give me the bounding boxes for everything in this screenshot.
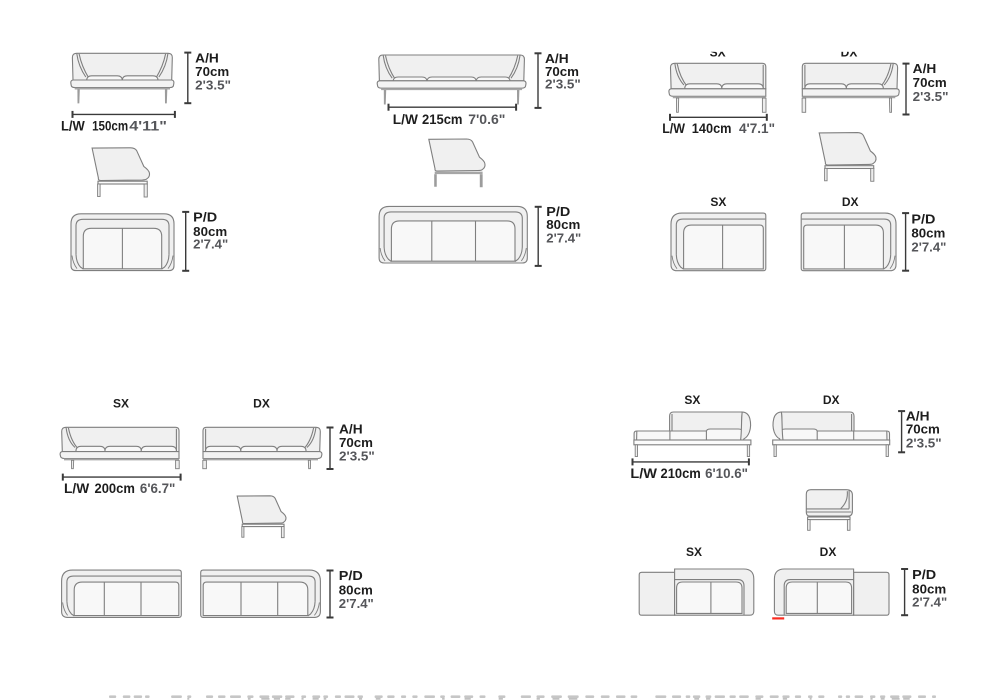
svg-text:DX: DX: [253, 397, 270, 411]
svg-text:A/H: A/H: [195, 52, 219, 66]
svg-text:P/D: P/D: [911, 212, 935, 226]
svg-text:80cm: 80cm: [339, 583, 373, 597]
svg-text:2'3.5": 2'3.5": [906, 437, 942, 451]
svg-text:2'3.5": 2'3.5": [913, 90, 949, 104]
svg-text:DX: DX: [823, 393, 840, 407]
svg-text:7'0.6": 7'0.6": [468, 111, 505, 127]
svg-text:A/H: A/H: [339, 423, 363, 437]
svg-text:4'11": 4'11": [129, 118, 167, 134]
svg-text:A/H: A/H: [913, 62, 937, 76]
svg-text:200cm: 200cm: [95, 480, 135, 496]
svg-text:6'6.7": 6'6.7": [140, 480, 176, 496]
svg-text:P/D: P/D: [339, 569, 363, 583]
svg-text:SX: SX: [684, 393, 700, 407]
svg-text:2'3.5": 2'3.5": [195, 78, 231, 92]
svg-text:140cm: 140cm: [692, 120, 732, 136]
svg-text:80cm: 80cm: [911, 227, 945, 241]
svg-text:80cm: 80cm: [546, 218, 580, 232]
svg-text:L/W: L/W: [662, 120, 685, 136]
svg-text:215cm: 215cm: [422, 111, 463, 127]
svg-text:L/W: L/W: [64, 480, 90, 496]
svg-text:P/D: P/D: [193, 210, 217, 224]
svg-text:2'7.4": 2'7.4": [912, 596, 947, 610]
svg-text:2'7.4": 2'7.4": [339, 597, 374, 611]
svg-text:L/W: L/W: [393, 111, 419, 127]
svg-text:70cm: 70cm: [906, 422, 940, 436]
svg-text:DX: DX: [842, 195, 859, 209]
svg-text:SX: SX: [113, 397, 129, 411]
svg-text:2'3.5": 2'3.5": [545, 78, 581, 92]
svg-text:2'7.4": 2'7.4": [193, 238, 228, 252]
svg-text:70cm: 70cm: [195, 65, 229, 79]
svg-text:70cm: 70cm: [913, 76, 947, 90]
svg-text:SX: SX: [710, 195, 726, 209]
svg-text:150cm: 150cm: [92, 118, 128, 134]
svg-text:DX: DX: [820, 545, 837, 559]
svg-text:P/D: P/D: [546, 205, 570, 219]
svg-text:70cm: 70cm: [339, 436, 373, 450]
svg-text:SX: SX: [686, 545, 702, 559]
svg-text:2'7.4": 2'7.4": [911, 241, 946, 255]
svg-text:L/W: L/W: [630, 465, 657, 481]
svg-text:6'10.6": 6'10.6": [705, 465, 748, 481]
svg-text:80cm: 80cm: [912, 583, 946, 597]
svg-text:2'7.4": 2'7.4": [546, 232, 581, 246]
svg-text:P/D: P/D: [912, 568, 936, 582]
svg-text:2'3.5": 2'3.5": [339, 450, 375, 464]
svg-text:210cm: 210cm: [661, 465, 701, 481]
svg-text:4'7.1": 4'7.1": [739, 120, 775, 136]
svg-text:L/W: L/W: [61, 118, 86, 134]
